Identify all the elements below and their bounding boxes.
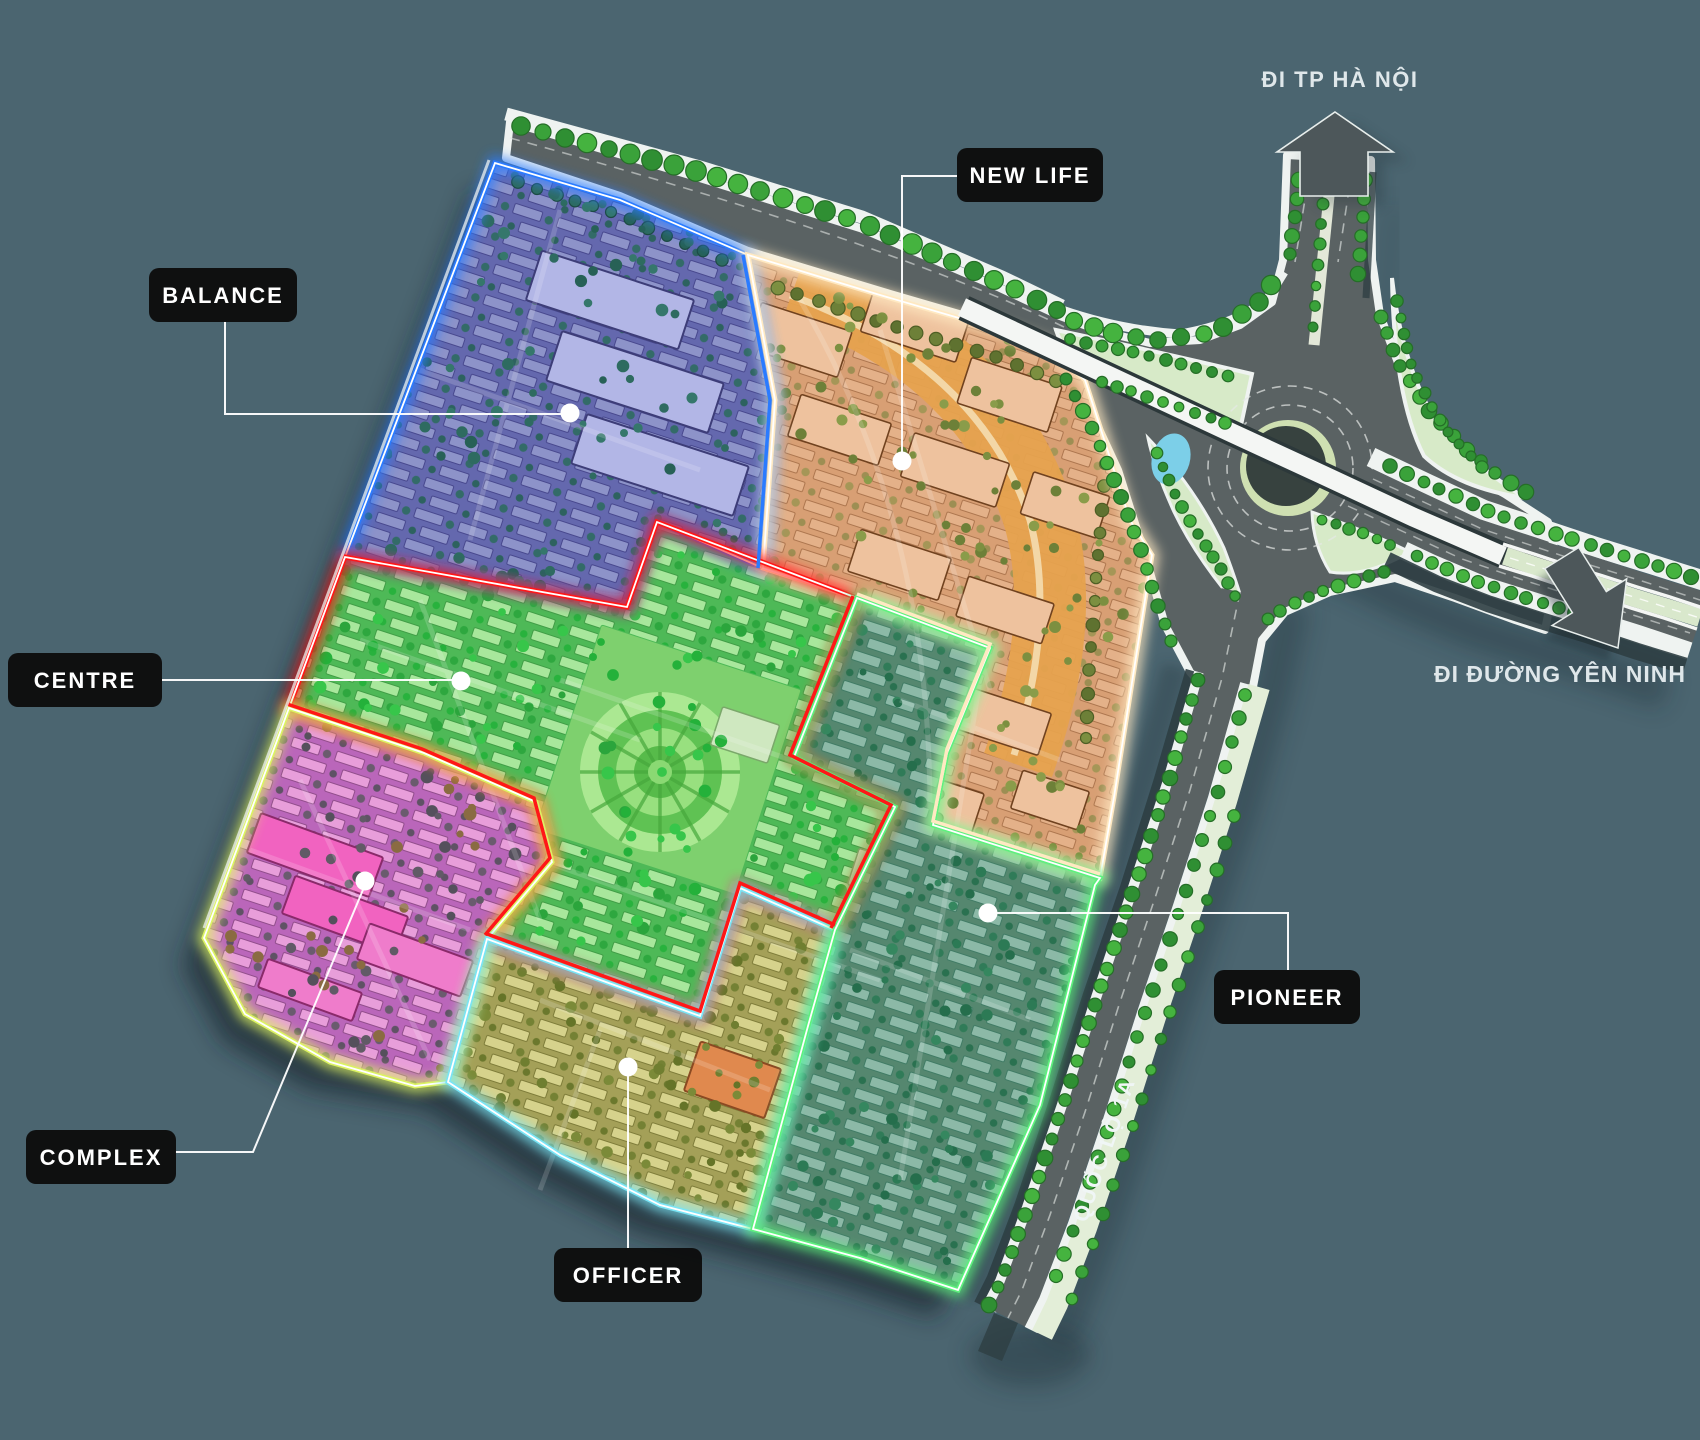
svg-text:PIONEER: PIONEER — [1230, 985, 1343, 1010]
svg-text:ĐI TP HÀ NỘI: ĐI TP HÀ NỘI — [1262, 67, 1419, 92]
svg-text:ĐI ĐƯỜNG YÊN NINH: ĐI ĐƯỜNG YÊN NINH — [1434, 660, 1686, 687]
svg-text:CENTRE: CENTRE — [34, 668, 136, 693]
svg-text:COMPLEX: COMPLEX — [40, 1145, 163, 1170]
svg-text:NEW LIFE: NEW LIFE — [969, 163, 1090, 188]
svg-text:OFFICER: OFFICER — [573, 1263, 684, 1288]
svg-text:BALANCE: BALANCE — [162, 283, 284, 308]
